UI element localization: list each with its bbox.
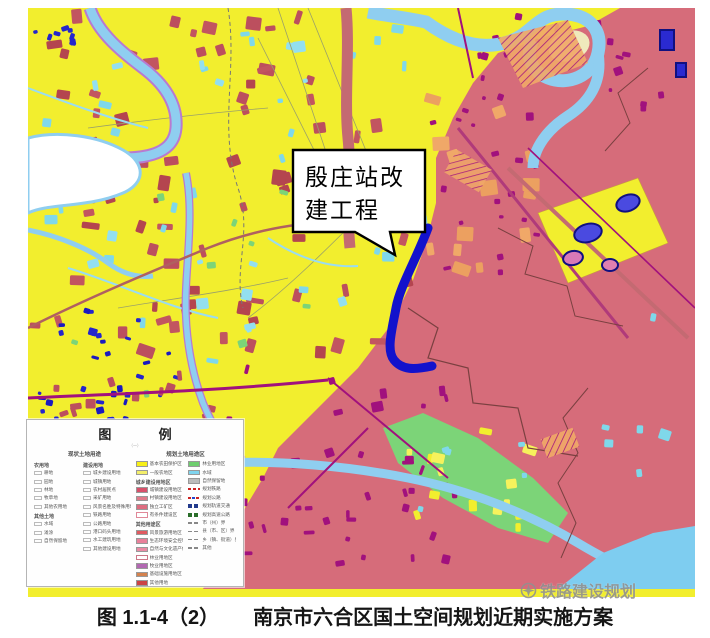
legend-item-label: 牧业用地区 [150, 563, 173, 569]
legend-swatch [188, 504, 200, 508]
legend-item: 风景旅游用地区 [136, 528, 184, 536]
legend-item: 自然保留地 [34, 537, 78, 545]
map-legend: 图 例 （一） 现状土地用途 规划土地用途区 农用地耕地园地林地牧草地其他农用地… [26, 419, 244, 587]
legend-swatch [136, 504, 148, 510]
legend-item: 其他 [188, 544, 236, 552]
legend-item-label: 规划铁路 [202, 486, 220, 492]
legend-item: 采矿用地 [83, 494, 131, 502]
legend-swatch [83, 496, 91, 500]
legend-swatch [136, 496, 148, 502]
legend-swatch [83, 538, 91, 542]
legend-item-label: 农村居民点 [93, 487, 116, 493]
legend-item-label: 铁路用地 [93, 512, 111, 518]
legend-item: 铁路用地 [83, 511, 131, 519]
legend-swatch [188, 478, 200, 484]
legend-swatch [83, 513, 91, 517]
callout-line1: 殷庄站改 [305, 165, 405, 190]
legend-item-label: 水工建筑用地 [93, 537, 121, 543]
watermark-text: 铁路建设规划 [540, 578, 636, 602]
legend-swatch [83, 488, 91, 492]
figure-title: 南京市六合区国土空间规划近期实施方案 [253, 601, 613, 630]
legend-item: 滩涂 [34, 528, 78, 536]
legend-swatch [83, 547, 91, 551]
legend-item: 市（州）界 [188, 519, 236, 527]
legend-item: 自然保留地 [188, 477, 236, 485]
legend-swatch [136, 538, 148, 544]
legend-item-label: 采矿用地 [93, 495, 111, 501]
legend-item-label: 水域 [44, 521, 53, 527]
legend-item: 乡（镇、街道）界 [188, 536, 236, 544]
legend-swatch [136, 512, 148, 518]
legend-item-label: 市（州）界 [202, 520, 225, 526]
legend-item: 规划铁路 [188, 485, 236, 493]
legend-swatch [188, 488, 200, 490]
legend-item: 规划轨道交通 [188, 502, 236, 510]
legend-columns: 农用地耕地园地林地牧草地其他农用地其他土地水域滩涂自然保留地 建设用地城乡建设用… [34, 460, 236, 587]
legend-item: 港口码头用地 [83, 528, 131, 536]
legend-item-label: 林地 [44, 487, 53, 493]
legend-swatch [34, 480, 42, 484]
legend-item-label: 一般农地区 [150, 470, 173, 476]
legend-item: 其他建设用地 [83, 545, 131, 553]
legend-section-headers: 现状土地用途 规划土地用途区 [34, 450, 236, 458]
legend-item: 风景名胜及特殊用地 [83, 503, 131, 511]
legend-swatch [136, 461, 148, 467]
page: 殷庄站改 建工程 图 例 （一） 现状土地用途 规划土地用途区 农用地耕地园地林… [0, 0, 710, 638]
legend-item-label: 村镇建设用地区 [150, 495, 182, 501]
figure-label: 图 1.1-4（2） [97, 601, 219, 630]
legend-swatch [188, 470, 200, 476]
legend-section-planned: 规划土地用途区 [135, 450, 236, 458]
legend-item: 牧业用地区 [136, 562, 184, 570]
legend-item-label: 规划轨道交通 [202, 503, 230, 509]
legend-group-header: 农用地 [34, 462, 78, 469]
legend-col-current-2: 建设用地城乡建设用地城镇用地农村居民点采矿用地风景名胜及特殊用地铁路用地公路用地… [83, 460, 131, 587]
legend-item-label: 有条件建设区 [150, 512, 178, 518]
legend-item-label: 城乡建设用地 [93, 470, 121, 476]
legend-swatch [136, 547, 148, 553]
legend-group-header: 建设用地 [83, 462, 131, 469]
legend-item: 独立工矿区 [136, 503, 184, 511]
legend-swatch [136, 530, 148, 536]
legend-swatch [136, 563, 148, 569]
legend-item: 公路用地 [83, 519, 131, 527]
watermark: 铁路建设规划 [520, 578, 636, 602]
legend-item-label: 独立工矿区 [150, 504, 173, 510]
legend-item-label: 园地 [44, 479, 53, 485]
legend-item-label: 其他建设用地 [93, 546, 121, 552]
legend-item: 其他用地 [136, 579, 184, 587]
legend-swatch [34, 505, 42, 509]
legend-item-label: 林业用地区 [202, 461, 225, 467]
legend-swatch [188, 539, 200, 541]
legend-item: 城镇建设用地区 [136, 486, 184, 494]
legend-item-label: 自然与文化遗产保护区 [150, 546, 184, 552]
legend-item-label: 城镇用地 [93, 479, 111, 485]
legend-item-label: 规划高速公路 [202, 512, 230, 518]
legend-item-label: 县（市、区）界 [202, 528, 234, 534]
legend-item: 规划公路 [188, 494, 236, 502]
legend-swatch [188, 522, 200, 524]
legend-item: 一般农地区 [136, 468, 184, 476]
legend-item-label: 自然保留地 [44, 538, 67, 544]
legend-item: 自然与文化遗产保护区 [136, 545, 184, 553]
legend-item-label: 林业用地区 [150, 555, 173, 561]
legend-item: 园地 [34, 477, 78, 485]
legend-item-label: 其他农用地 [44, 504, 67, 510]
legend-item: 县（市、区）界 [188, 527, 236, 535]
legend-item-label: 基本农田保护区 [150, 461, 182, 467]
legend-swatch [34, 496, 42, 500]
watermark-logo-icon [520, 582, 537, 599]
legend-item: 基础设施用地区 [136, 570, 184, 578]
legend-item-label: 风景名胜及特殊用地 [93, 504, 131, 510]
legend-group-header: 其他土地 [34, 513, 78, 520]
legend-item-label: 基础设施用地区 [150, 571, 182, 577]
legend-item-label: 其他 [202, 545, 211, 551]
legend-swatch [136, 470, 148, 476]
legend-item: 林业用地区 [136, 554, 184, 562]
legend-item: 耕地 [34, 469, 78, 477]
legend-swatch [188, 531, 200, 533]
legend-swatch [83, 480, 91, 484]
legend-swatch [83, 471, 91, 475]
legend-col-planned-1: 基本农田保护区一般农地区城乡建设用地区城镇建设用地区村镇建设用地区独立工矿区有条… [136, 460, 184, 587]
legend-swatch [34, 471, 42, 475]
legend-swatch [188, 461, 200, 467]
legend-item-label: 自然保留地 [202, 478, 225, 484]
legend-group-header: 其他用途区 [136, 521, 184, 528]
legend-item: 牧草地 [34, 494, 78, 502]
legend-swatch [136, 487, 148, 493]
legend-item: 村镇建设用地区 [136, 494, 184, 502]
legend-swatch [188, 513, 200, 517]
legend-col-planned-2: 林业用地区水域自然保留地规划铁路规划公路规划轨道交通规划高速公路市（州）界县（市… [188, 460, 236, 587]
legend-item-label: 其他用地 [150, 580, 168, 586]
callout-line2: 建工程 [305, 198, 380, 223]
legend-swatch [34, 539, 42, 543]
legend-item: 有条件建设区 [136, 511, 184, 519]
legend-swatch [136, 572, 148, 578]
legend-item-label: 水域 [202, 470, 211, 476]
figure-caption: 图 1.1-4（2） 南京市六合区国土空间规划近期实施方案 [0, 601, 710, 630]
legend-swatch [136, 555, 148, 561]
legend-item-label: 牧草地 [44, 495, 58, 501]
legend-item-label: 规划公路 [202, 495, 220, 501]
legend-swatch [83, 522, 91, 526]
legend-item-label: 乡（镇、街道）界 [202, 537, 236, 543]
legend-item-label: 生态环境安全控制区 [150, 538, 184, 544]
legend-swatch [34, 531, 42, 535]
legend-item-label: 风景旅游用地区 [150, 530, 182, 536]
legend-swatch [188, 497, 200, 499]
legend-col-current-1: 农用地耕地园地林地牧草地其他农用地其他土地水域滩涂自然保留地 [34, 460, 78, 587]
legend-item: 规划高速公路 [188, 510, 236, 518]
legend-item-label: 耕地 [44, 470, 53, 476]
legend-item: 城镇用地 [83, 477, 131, 485]
legend-item-label: 公路用地 [93, 521, 111, 527]
legend-item: 水工建筑用地 [83, 536, 131, 544]
legend-swatch [136, 580, 148, 586]
legend-item-label: 城镇建设用地区 [150, 487, 182, 493]
legend-item: 林地 [34, 486, 78, 494]
legend-item: 水域 [188, 468, 236, 476]
legend-swatch [34, 488, 42, 492]
legend-item-label: 滩涂 [44, 530, 53, 536]
legend-section-current: 现状土地用途 [34, 450, 135, 458]
legend-item: 水域 [34, 520, 78, 528]
legend-swatch [34, 522, 42, 526]
legend-subtitle: （一） [34, 443, 236, 449]
legend-item: 林业用地区 [188, 460, 236, 468]
legend-item: 农村居民点 [83, 486, 131, 494]
legend-item: 生态环境安全控制区 [136, 537, 184, 545]
legend-item: 基本农田保护区 [136, 460, 184, 468]
legend-swatch [83, 530, 91, 534]
legend-item: 城乡建设用地 [83, 469, 131, 477]
legend-item-label: 港口码头用地 [93, 529, 121, 535]
legend-swatch [83, 505, 91, 509]
legend-item: 其他农用地 [34, 503, 78, 511]
legend-group-header: 城乡建设用地区 [136, 479, 184, 486]
legend-swatch [188, 547, 200, 549]
legend-title: 图 例 [34, 424, 236, 443]
